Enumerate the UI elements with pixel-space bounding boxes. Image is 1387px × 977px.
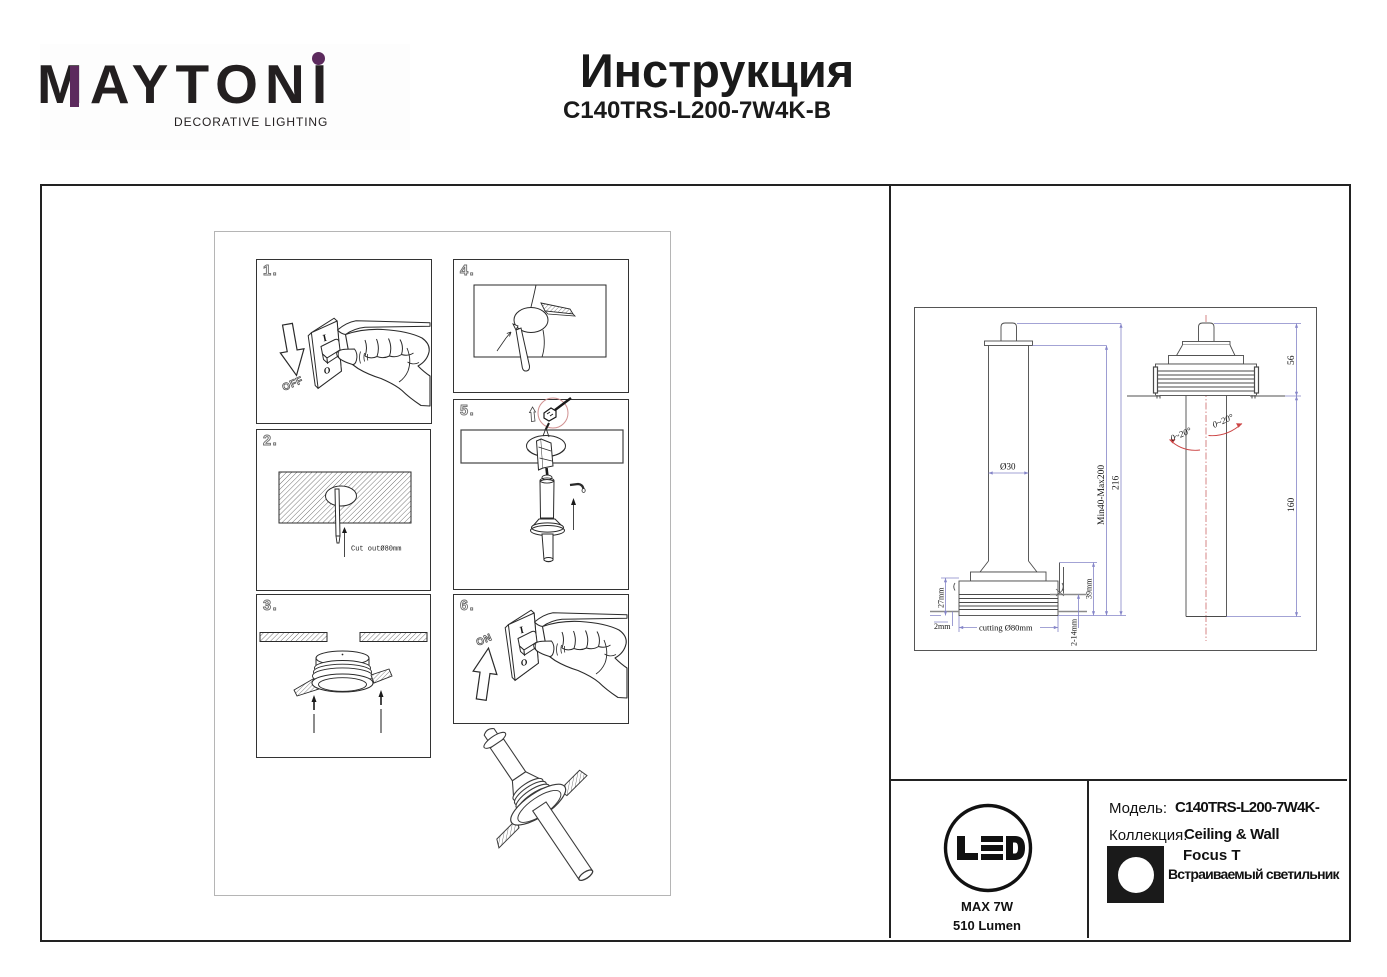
svg-text:39mm: 39mm	[1085, 578, 1094, 599]
svg-text:Cut outØ80mm: Cut outØ80mm	[351, 545, 401, 554]
svg-text:2-14mm: 2-14mm	[1070, 618, 1079, 646]
svg-text:OFF: OFF	[281, 375, 305, 394]
svg-text:2mm: 2mm	[934, 622, 951, 631]
svg-text:56: 56	[1287, 355, 1297, 365]
svg-text:160: 160	[1287, 498, 1297, 513]
svg-text:cutting Ø80mm: cutting Ø80mm	[979, 623, 1033, 633]
svg-text:Ø30: Ø30	[1000, 462, 1016, 472]
svg-text:ON: ON	[475, 632, 494, 649]
svg-text:0~20°: 0~20°	[1169, 425, 1194, 443]
svg-text:27mm: 27mm	[937, 587, 946, 608]
svg-text:216: 216	[1112, 476, 1122, 491]
svg-text:Min40-Max200: Min40-Max200	[1097, 465, 1107, 525]
svg-text:0~20°: 0~20°	[1211, 412, 1236, 430]
